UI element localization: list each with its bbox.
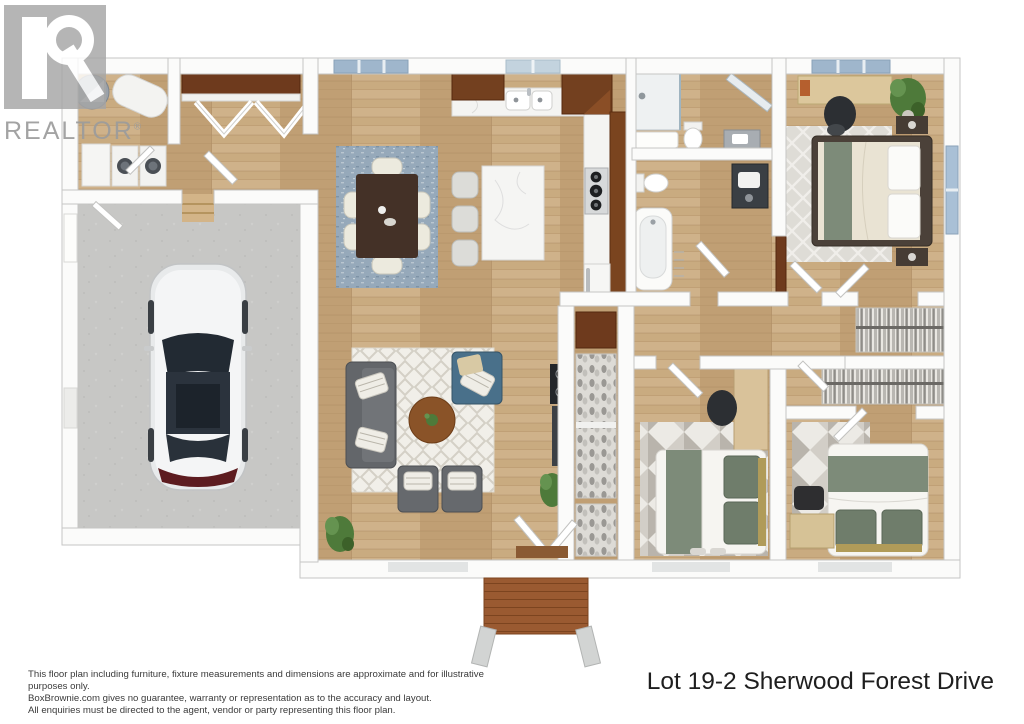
vanity <box>724 130 760 148</box>
accent-chair <box>442 466 482 512</box>
gas-cooktop <box>585 168 608 214</box>
sunroof <box>176 384 220 428</box>
laundry-wall <box>168 58 180 144</box>
sofa <box>346 362 396 468</box>
bedroom2-desk <box>734 366 768 450</box>
entry-wall-stub <box>303 58 318 134</box>
shoe-closet <box>576 504 616 556</box>
garage-living-wall <box>300 190 318 562</box>
dining-area <box>336 146 438 288</box>
side-mirror-left <box>144 346 154 351</box>
cabinet-fronts <box>610 112 628 298</box>
bedroom2-bed <box>656 450 766 554</box>
toilet <box>684 122 702 150</box>
garage-window <box>64 214 77 262</box>
exterior-wall-left <box>62 58 78 545</box>
property-address: Lot 19-2 Sherwood Forest Drive <box>647 668 994 696</box>
clothes-rack <box>856 308 944 352</box>
master-bedroom <box>786 76 932 266</box>
deck-platform <box>484 578 588 634</box>
disclaimer-line: This floor plan including furniture, fix… <box>28 669 498 693</box>
utility-cabinet <box>82 144 110 186</box>
garage-steps <box>182 194 214 222</box>
kitchen-bath-wall <box>626 58 636 294</box>
upper-cabinets <box>452 74 504 100</box>
bedroom2-chair <box>707 390 737 426</box>
kitchen-sink <box>506 88 552 110</box>
master-door-open <box>776 236 786 292</box>
floor-plan-render <box>0 0 1024 724</box>
accent-chair <box>398 466 438 512</box>
windshield <box>162 333 234 376</box>
master-bed <box>812 136 932 246</box>
bedroom3-bed <box>828 444 928 556</box>
clothes-rack <box>822 368 944 404</box>
garage-wall-bottom <box>62 528 314 545</box>
dark-bag <box>794 486 824 510</box>
teal-armchair <box>452 352 502 404</box>
bedroom2-bedroom3-wall <box>770 369 786 560</box>
door-mat <box>516 546 568 558</box>
kitchen-island <box>482 166 544 260</box>
garage-niche <box>64 388 77 428</box>
master-window-right <box>946 146 958 234</box>
closet-bedroom2-wall <box>618 306 634 560</box>
shower-head <box>639 93 646 100</box>
hall-cabinet <box>576 312 616 348</box>
kitchen-window <box>506 60 560 73</box>
bath-master-wall <box>772 58 786 236</box>
bedroom3-window-sill <box>818 562 892 572</box>
dining-table <box>356 174 418 258</box>
deck-post <box>576 626 601 667</box>
bedroom2-window-sill <box>652 562 730 572</box>
toilet <box>636 174 668 192</box>
living-window-sill <box>388 562 468 572</box>
side-mirror-right <box>242 346 252 351</box>
disclaimer-line: BoxBrownie.com gives no guarantee, warra… <box>28 693 498 705</box>
disclaimer-text: This floor plan including furniture, fix… <box>28 669 498 717</box>
exterior-wall-right <box>944 58 960 578</box>
disclaimer-line: All enquiries must be directed to the ag… <box>28 705 498 717</box>
deck-post <box>472 626 497 667</box>
bath-divider-wall <box>632 148 772 160</box>
island-stools <box>452 172 478 266</box>
coffee-table <box>409 397 455 443</box>
floor-plan-image: REALTOR® This floor plan including furni… <box>0 0 1024 724</box>
vanity-dark <box>732 164 768 208</box>
car <box>144 264 252 490</box>
bathtub <box>634 208 672 290</box>
master-window-top <box>812 60 890 73</box>
rear-deck <box>472 578 601 667</box>
dining-window <box>334 60 408 73</box>
closet-divider-wall <box>845 356 944 369</box>
bath-bench <box>634 132 678 148</box>
bedroom3-bench <box>790 514 834 548</box>
